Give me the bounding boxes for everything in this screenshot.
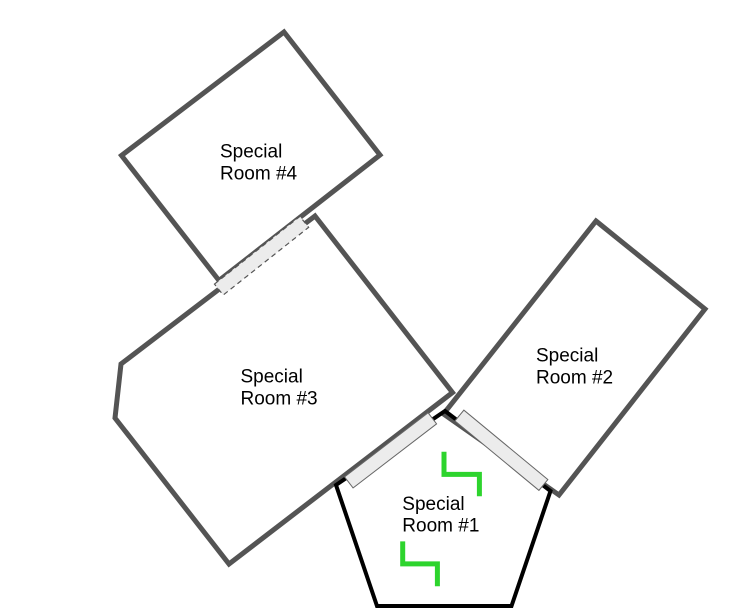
svg-text:Special: Special [220, 141, 282, 162]
svg-text:Special: Special [402, 494, 464, 515]
svg-text:Special: Special [241, 367, 303, 388]
svg-text:Room #4: Room #4 [220, 164, 298, 185]
svg-text:Special: Special [536, 346, 598, 367]
svg-text:Room #2: Room #2 [536, 367, 613, 388]
svg-text:Room #1: Room #1 [402, 516, 479, 537]
svg-text:Room #3: Room #3 [241, 389, 318, 410]
